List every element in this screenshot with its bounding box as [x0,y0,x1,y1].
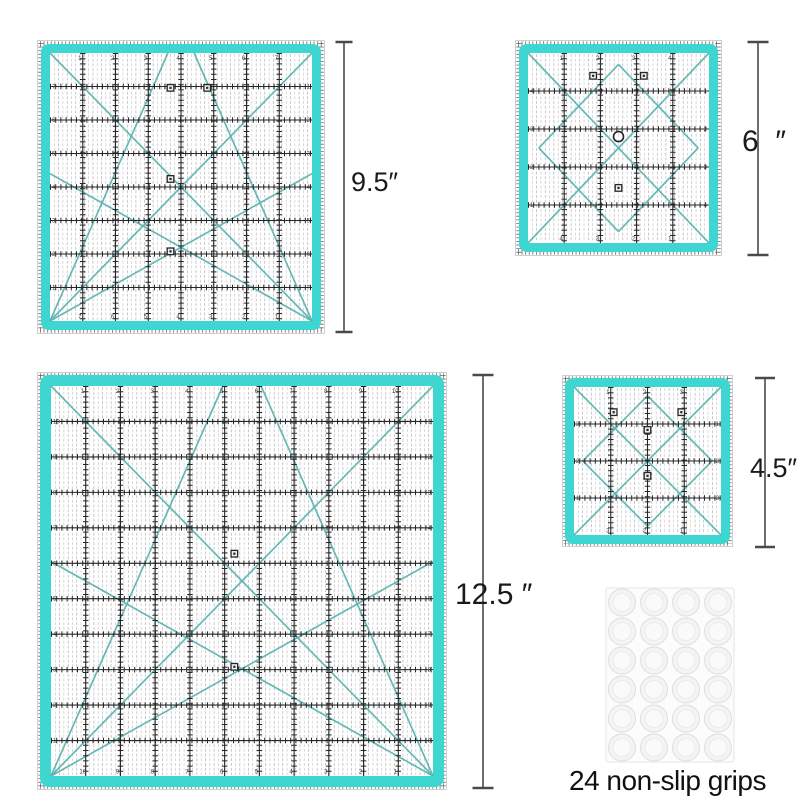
grips-caption: 24 non-slip grips [569,766,766,797]
dimension-line-0 [336,41,353,333]
ruler-9.5-inch: 1771266235534444533562267117 [38,41,325,334]
dimension-label-12-5-inch: 12.5 ″ [455,580,532,610]
dimension-label-9-5-inch: 9.5″ [351,169,398,196]
product-image-quilting-ruler-set: 1771266235534444533562267117144123323223… [0,0,800,800]
non-slip-grips-sheet [606,588,734,762]
dimension-label-4-5-inch: 4.5″ [750,455,797,482]
svg-text:10: 10 [53,419,60,425]
dimension-label-6-inch: 6 ″ [742,127,786,157]
svg-text:10: 10 [79,770,86,776]
rulers-and-grips-graphic: 1771266235534444533562267117144123323223… [0,0,800,800]
svg-text:10: 10 [392,389,399,395]
ruler-6-inch: 1441233232234114 [516,41,722,256]
ruler-12.5-inch: 1101012992388347745665655674478338922910… [38,373,447,790]
svg-text:10: 10 [424,739,431,745]
ruler-4.5-inch: 133122223113 [563,376,733,547]
